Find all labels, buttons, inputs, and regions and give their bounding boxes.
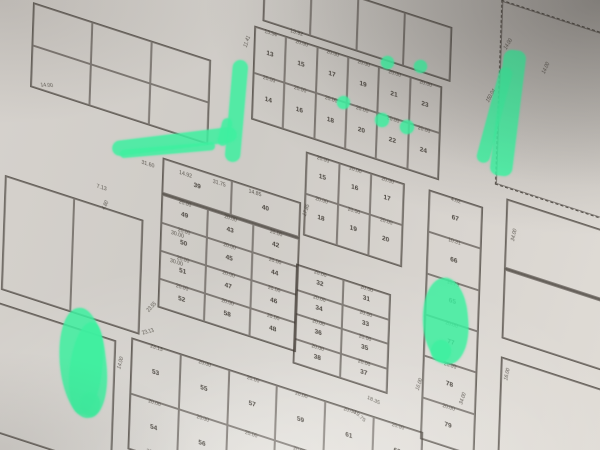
lot-20: 2020.00 [345,103,378,159]
dimension-label: 31.60 [141,161,154,170]
empty-parcel-cell [357,0,405,66]
dimension-label: 11.41 [244,35,253,49]
block-top-left-grid [30,2,211,145]
lot-22: 2220.00 [376,113,409,169]
dimension-label: 14.00 [117,356,125,371]
dimension-label: 7.13 [96,184,106,192]
lot-63: 6320.00 [372,417,422,450]
parcel-dashed-boundary [495,0,600,223]
empty-parcel-cell [496,1,600,222]
lot-16: 1620.00 [283,83,316,139]
lot-14: 1420.00 [252,73,285,129]
empty-parcel-cell [2,176,74,311]
block-31-38: 3220.003120.003420.003320.003620.003520.… [293,263,391,394]
lot-18: 1820.00 [314,93,347,149]
empty-parcel-cell [403,13,451,81]
dimension-label: 14.00 [40,83,54,89]
empty-parcel-cell [497,358,600,450]
dimension-label: 150.04 [486,88,498,104]
empty-parcel-cell [70,198,142,333]
empty-parcel-cell [310,0,358,51]
lot-24: 2420.00 [407,123,440,179]
dimension-label: 18.35 [367,396,381,407]
plat-map: 1313.541520.001720.001920.002120.002320.… [0,0,600,450]
dimension-label: 23.13 [142,329,156,337]
lot-61: 6120.00 [324,401,374,450]
dimension-label: 23.55 [146,302,158,315]
photo-of-plat-map: 1313.541520.001720.001920.002120.002320.… [0,0,600,450]
lot-59: 5920.00 [275,386,325,450]
block-65-67-col: 674.626610.316510.797720.007820.007920.0… [420,189,483,450]
block-15-20: 1520.001620.001720.001820.001920.002020.… [303,151,405,267]
